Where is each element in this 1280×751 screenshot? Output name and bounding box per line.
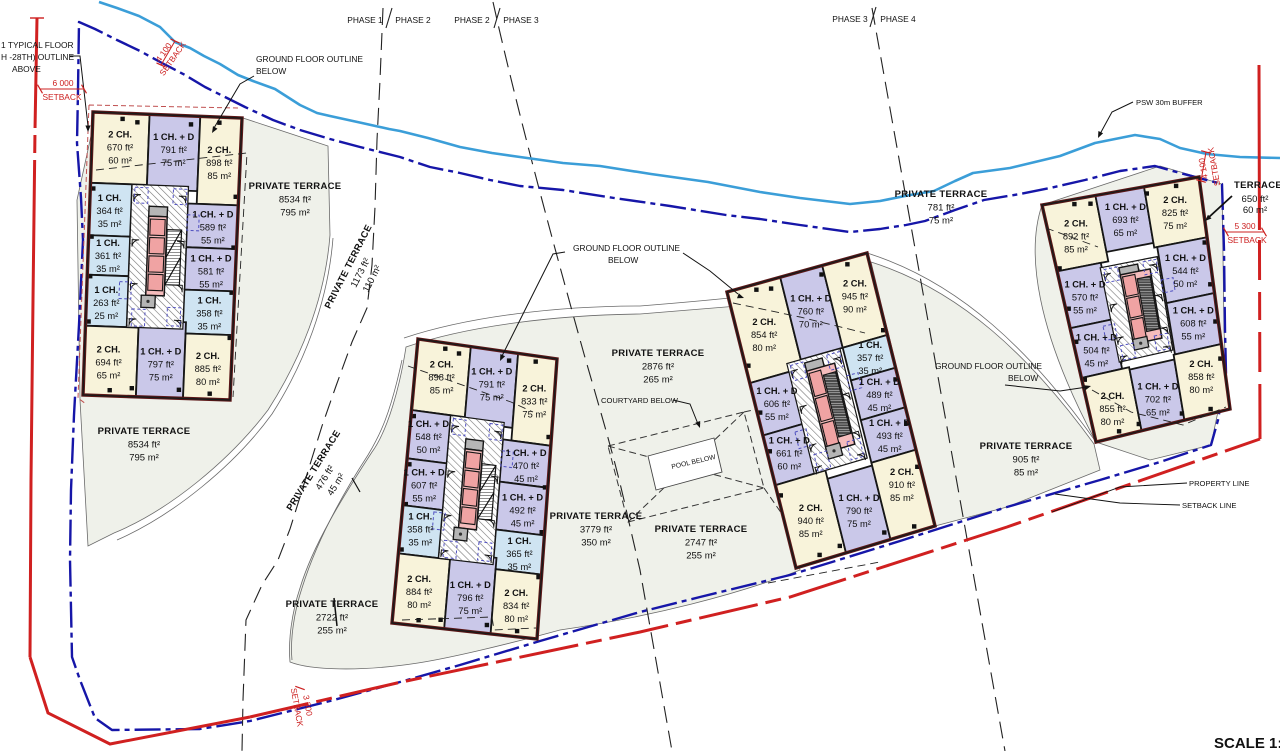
svg-text:SETBACK: SETBACK bbox=[1227, 235, 1267, 245]
svg-text:797 ft²: 797 ft² bbox=[148, 359, 174, 369]
svg-text:790 ft²: 790 ft² bbox=[846, 506, 872, 516]
svg-text:90 m²: 90 m² bbox=[843, 304, 867, 314]
svg-text:55 m²: 55 m² bbox=[201, 236, 225, 246]
svg-text:PRIVATE TERRACE: PRIVATE TERRACE bbox=[612, 348, 705, 359]
svg-text:SETBACK LINE: SETBACK LINE bbox=[1182, 501, 1236, 510]
svg-text:607 ft²: 607 ft² bbox=[411, 480, 437, 490]
svg-text:2722 ft²: 2722 ft² bbox=[316, 613, 348, 624]
svg-text:85 m²: 85 m² bbox=[1014, 468, 1038, 479]
svg-text:TERRACE: TERRACE bbox=[1234, 180, 1280, 191]
svg-text:45 m²: 45 m² bbox=[511, 519, 535, 529]
svg-text:1 CH. + D: 1 CH. + D bbox=[408, 419, 449, 429]
svg-text:1 CH.: 1 CH. bbox=[508, 536, 532, 546]
svg-text:589 ft²: 589 ft² bbox=[200, 223, 226, 233]
svg-text:PHASE 3: PHASE 3 bbox=[503, 15, 539, 25]
svg-text:361 ft²: 361 ft² bbox=[95, 251, 121, 261]
svg-text:905 ft²: 905 ft² bbox=[1013, 455, 1040, 466]
svg-text:1 CH. + D: 1 CH. + D bbox=[502, 493, 543, 503]
svg-text:2 CH.: 2 CH. bbox=[1101, 391, 1125, 401]
svg-text:PRIVATE TERRACE: PRIVATE TERRACE bbox=[249, 181, 342, 192]
svg-text:1 CH.: 1 CH. bbox=[408, 511, 432, 521]
svg-text:255 m²: 255 m² bbox=[317, 626, 347, 637]
svg-text:75 m²: 75 m² bbox=[929, 216, 953, 227]
svg-text:80 m²: 80 m² bbox=[1189, 385, 1213, 395]
svg-text:45 m²: 45 m² bbox=[514, 474, 538, 484]
svg-text:350 m²: 350 m² bbox=[581, 538, 611, 549]
svg-text:35 m²: 35 m² bbox=[508, 562, 532, 572]
svg-text:2876 ft²: 2876 ft² bbox=[642, 362, 674, 373]
svg-text:1 CH. + D: 1 CH. + D bbox=[1064, 279, 1105, 289]
svg-text:940 ft²: 940 ft² bbox=[798, 516, 824, 526]
svg-text:1 CH. + D: 1 CH. + D bbox=[192, 210, 233, 220]
svg-text:702 ft²: 702 ft² bbox=[1145, 394, 1171, 404]
svg-text:BELOW: BELOW bbox=[1008, 373, 1038, 383]
svg-text:606 ft²: 606 ft² bbox=[764, 399, 790, 409]
svg-text:1 CH. + D: 1 CH. + D bbox=[869, 418, 910, 428]
svg-text:2 CH.: 2 CH. bbox=[407, 574, 431, 584]
svg-text:1 CH. + D: 1 CH. + D bbox=[153, 132, 194, 142]
svg-text:60 m²: 60 m² bbox=[108, 156, 132, 166]
svg-text:910 ft²: 910 ft² bbox=[889, 480, 915, 490]
svg-text:364 ft²: 364 ft² bbox=[96, 206, 122, 216]
svg-text:8534 ft²: 8534 ft² bbox=[279, 195, 311, 206]
svg-text:60 m²: 60 m² bbox=[1243, 205, 1267, 216]
svg-text:2 CH.: 2 CH. bbox=[752, 317, 776, 327]
svg-text:493 ft²: 493 ft² bbox=[876, 431, 902, 441]
svg-text:492 ft²: 492 ft² bbox=[509, 506, 535, 516]
svg-text:55 m²: 55 m² bbox=[1073, 305, 1097, 315]
svg-text:80 m²: 80 m² bbox=[196, 377, 220, 387]
svg-text:85 m²: 85 m² bbox=[207, 171, 231, 181]
svg-text:65 m²: 65 m² bbox=[1146, 407, 1170, 417]
svg-text:75 m²: 75 m² bbox=[480, 392, 504, 402]
svg-text:2 CH.: 2 CH. bbox=[522, 384, 546, 394]
svg-text:1 CH.: 1 CH. bbox=[98, 193, 122, 203]
svg-text:1 CH. + D: 1 CH. + D bbox=[404, 467, 445, 477]
svg-text:PRIVATE TERRACE: PRIVATE TERRACE bbox=[895, 189, 988, 200]
svg-text:548 ft²: 548 ft² bbox=[415, 432, 441, 442]
svg-text:75 m²: 75 m² bbox=[1163, 221, 1187, 231]
svg-text:1 CH. + D: 1 CH. + D bbox=[1105, 202, 1146, 212]
svg-text:GROUND FLOOR OUTLINE: GROUND FLOOR OUTLINE bbox=[935, 361, 1042, 371]
svg-text:35 m²: 35 m² bbox=[858, 366, 882, 376]
svg-text:PRIVATE TERRACE: PRIVATE TERRACE bbox=[98, 426, 191, 437]
svg-text:PROPERTY LINE: PROPERTY LINE bbox=[1189, 479, 1250, 488]
svg-text:795 m²: 795 m² bbox=[129, 453, 159, 464]
svg-text:80 m²: 80 m² bbox=[407, 600, 431, 610]
svg-text:693 ft²: 693 ft² bbox=[1112, 215, 1138, 225]
svg-text:608 ft²: 608 ft² bbox=[1180, 319, 1206, 329]
svg-text:PRIVATE TERRACE: PRIVATE TERRACE bbox=[655, 524, 748, 535]
svg-text:1 CH. + D: 1 CH. + D bbox=[756, 386, 797, 396]
svg-text:35 m²: 35 m² bbox=[98, 219, 122, 229]
svg-text:55 m²: 55 m² bbox=[765, 412, 789, 422]
svg-text:795 m²: 795 m² bbox=[280, 208, 310, 219]
svg-text:PHASE 2: PHASE 2 bbox=[454, 15, 490, 25]
svg-text:75 m²: 75 m² bbox=[522, 410, 546, 420]
svg-text:85 m²: 85 m² bbox=[1064, 245, 1088, 255]
svg-text:2 CH.: 2 CH. bbox=[1189, 359, 1213, 369]
svg-text:SETBACK: SETBACK bbox=[42, 92, 82, 102]
svg-text:5 300: 5 300 bbox=[1235, 221, 1256, 231]
svg-text:1 CH.: 1 CH. bbox=[858, 340, 882, 350]
svg-text:661 ft²: 661 ft² bbox=[776, 449, 802, 459]
svg-text:75 m²: 75 m² bbox=[847, 519, 871, 529]
svg-text:SCALE 1:2: SCALE 1:2 bbox=[1214, 735, 1280, 751]
svg-text:2 CH.: 2 CH. bbox=[843, 278, 867, 288]
svg-text:796 ft²: 796 ft² bbox=[457, 593, 483, 603]
svg-text:1 CH. + D: 1 CH. + D bbox=[471, 366, 512, 376]
svg-text:544 ft²: 544 ft² bbox=[1172, 266, 1198, 276]
svg-text:581 ft²: 581 ft² bbox=[198, 266, 224, 276]
svg-text:2747 ft²: 2747 ft² bbox=[685, 538, 717, 549]
svg-text:45 m²: 45 m² bbox=[878, 444, 902, 454]
svg-text:760 ft²: 760 ft² bbox=[798, 307, 824, 317]
svg-text:570 ft²: 570 ft² bbox=[1072, 292, 1098, 302]
svg-text:80 m²: 80 m² bbox=[1101, 417, 1125, 427]
svg-text:1 CH. + D: 1 CH. + D bbox=[1173, 306, 1214, 316]
svg-text:80 m²: 80 m² bbox=[752, 343, 776, 353]
svg-text:PHASE 2: PHASE 2 bbox=[395, 15, 431, 25]
svg-text:1 CH. + D: 1 CH. + D bbox=[505, 448, 546, 458]
svg-text:PSW 30m BUFFER: PSW 30m BUFFER bbox=[1136, 98, 1203, 107]
svg-text:35 m²: 35 m² bbox=[198, 322, 222, 332]
svg-text:BELOW: BELOW bbox=[608, 255, 638, 265]
svg-text:85 m²: 85 m² bbox=[890, 493, 914, 503]
svg-text:35 m²: 35 m² bbox=[96, 264, 120, 274]
svg-text:357 ft²: 357 ft² bbox=[857, 353, 883, 363]
svg-text:1 TYPICAL FLOOR: 1 TYPICAL FLOOR bbox=[1, 40, 74, 50]
svg-text:945 ft²: 945 ft² bbox=[842, 291, 868, 301]
svg-text:70 m²: 70 m² bbox=[799, 320, 823, 330]
svg-text:75 m²: 75 m² bbox=[149, 372, 173, 382]
svg-text:1 CH.: 1 CH. bbox=[94, 285, 118, 295]
svg-text:45 m²: 45 m² bbox=[1085, 359, 1109, 369]
svg-text:825 ft²: 825 ft² bbox=[1162, 208, 1188, 218]
svg-text:2 CH.: 2 CH. bbox=[890, 467, 914, 477]
svg-text:8534 ft²: 8534 ft² bbox=[128, 440, 160, 451]
svg-text:694 ft²: 694 ft² bbox=[95, 358, 121, 368]
svg-text:358 ft²: 358 ft² bbox=[196, 309, 222, 319]
svg-text:55 m²: 55 m² bbox=[1181, 332, 1205, 342]
svg-text:6 000: 6 000 bbox=[53, 78, 74, 88]
svg-text:55 m²: 55 m² bbox=[199, 279, 223, 289]
svg-text:1 CH. + D: 1 CH. + D bbox=[790, 294, 831, 304]
svg-text:2 CH.: 2 CH. bbox=[1163, 195, 1187, 205]
svg-text:25 m²: 25 m² bbox=[94, 311, 118, 321]
svg-text:781 ft²: 781 ft² bbox=[928, 203, 955, 214]
svg-text:2 CH.: 2 CH. bbox=[430, 359, 454, 369]
svg-text:670 ft²: 670 ft² bbox=[107, 143, 133, 153]
svg-text:2 CH.: 2 CH. bbox=[207, 145, 231, 155]
svg-text:GROUND FLOOR OUTLINE: GROUND FLOOR OUTLINE bbox=[256, 54, 363, 64]
svg-text:358 ft²: 358 ft² bbox=[407, 524, 433, 534]
svg-text:1 CH. + D: 1 CH. + D bbox=[1165, 253, 1206, 263]
svg-text:GROUND FLOOR OUTLINE: GROUND FLOOR OUTLINE bbox=[573, 243, 680, 253]
svg-text:855 ft²: 855 ft² bbox=[1099, 404, 1125, 414]
svg-text:1 CH.: 1 CH. bbox=[198, 296, 222, 306]
svg-text:265 m²: 265 m² bbox=[643, 375, 673, 386]
svg-text:PHASE 3: PHASE 3 bbox=[832, 14, 868, 24]
svg-text:2 CH.: 2 CH. bbox=[108, 130, 132, 140]
svg-text:PHASE 4: PHASE 4 bbox=[880, 14, 916, 24]
svg-text:80 m²: 80 m² bbox=[504, 614, 528, 624]
svg-text:75 m²: 75 m² bbox=[458, 606, 482, 616]
svg-text:791 ft²: 791 ft² bbox=[161, 145, 187, 155]
svg-text:1 CH. + D: 1 CH. + D bbox=[838, 493, 879, 503]
svg-text:PRIVATE TERRACE: PRIVATE TERRACE bbox=[550, 511, 643, 522]
svg-text:885 ft²: 885 ft² bbox=[195, 364, 221, 374]
svg-text:BELOW: BELOW bbox=[256, 66, 286, 76]
svg-text:1 CH. + D: 1 CH. + D bbox=[1137, 381, 1178, 391]
svg-text:COURTYARD BELOW: COURTYARD BELOW bbox=[601, 396, 679, 405]
svg-text:2 CH.: 2 CH. bbox=[97, 345, 121, 355]
svg-text:85 m²: 85 m² bbox=[430, 385, 454, 395]
svg-text:892 ft²: 892 ft² bbox=[1063, 232, 1089, 242]
svg-text:45 m²: 45 m² bbox=[868, 403, 892, 413]
svg-text:791 ft²: 791 ft² bbox=[479, 379, 505, 389]
svg-text:50 m²: 50 m² bbox=[1174, 279, 1198, 289]
svg-text:ABOVE: ABOVE bbox=[12, 64, 41, 74]
svg-text:898 ft²: 898 ft² bbox=[206, 158, 232, 168]
svg-text:884 ft²: 884 ft² bbox=[406, 587, 432, 597]
svg-text:858 ft²: 858 ft² bbox=[1188, 372, 1214, 382]
svg-text:263 ft²: 263 ft² bbox=[93, 298, 119, 308]
svg-text:65 m²: 65 m² bbox=[97, 371, 121, 381]
svg-text:833 ft²: 833 ft² bbox=[521, 397, 547, 407]
svg-text:1 CH. + D: 1 CH. + D bbox=[450, 580, 491, 590]
svg-text:50 m²: 50 m² bbox=[417, 445, 441, 455]
svg-text:1 CH.: 1 CH. bbox=[96, 238, 120, 248]
svg-text:1 CH. + D: 1 CH. + D bbox=[1076, 333, 1117, 343]
svg-text:1 CH. + D: 1 CH. + D bbox=[859, 377, 900, 387]
svg-text:2 CH.: 2 CH. bbox=[799, 503, 823, 513]
svg-text:60 m²: 60 m² bbox=[777, 462, 801, 472]
svg-text:1 CH. + D: 1 CH. + D bbox=[769, 436, 810, 446]
svg-text:PRIVATE TERRACE: PRIVATE TERRACE bbox=[286, 599, 379, 610]
svg-text:75 m²: 75 m² bbox=[162, 158, 186, 168]
svg-text:470 ft²: 470 ft² bbox=[513, 461, 539, 471]
svg-text:1 CH. + D: 1 CH. + D bbox=[191, 253, 232, 263]
svg-text:489 ft²: 489 ft² bbox=[866, 390, 892, 400]
svg-text:504 ft²: 504 ft² bbox=[1083, 346, 1109, 356]
svg-text:2 CH.: 2 CH. bbox=[504, 588, 528, 598]
svg-text:65 m²: 65 m² bbox=[1114, 228, 1138, 238]
svg-text:834 ft²: 834 ft² bbox=[503, 601, 529, 611]
svg-text:1 CH. + D: 1 CH. + D bbox=[140, 346, 181, 356]
svg-text:H -28TH) OUTLINE: H -28TH) OUTLINE bbox=[1, 52, 74, 62]
svg-text:PHASE 1: PHASE 1 bbox=[347, 15, 383, 25]
svg-text:365 ft²: 365 ft² bbox=[506, 549, 532, 559]
svg-text:650 ft²: 650 ft² bbox=[1242, 194, 1269, 205]
svg-text:3779 ft²: 3779 ft² bbox=[580, 525, 612, 536]
svg-text:2 CH.: 2 CH. bbox=[1064, 219, 1088, 229]
svg-text:35 m²: 35 m² bbox=[408, 537, 432, 547]
svg-text:55 m²: 55 m² bbox=[412, 493, 436, 503]
svg-text:255 m²: 255 m² bbox=[686, 551, 716, 562]
svg-text:854 ft²: 854 ft² bbox=[751, 330, 777, 340]
svg-text:2 CH.: 2 CH. bbox=[196, 351, 220, 361]
svg-text:PRIVATE TERRACE: PRIVATE TERRACE bbox=[980, 441, 1073, 452]
svg-text:85 m²: 85 m² bbox=[799, 529, 823, 539]
